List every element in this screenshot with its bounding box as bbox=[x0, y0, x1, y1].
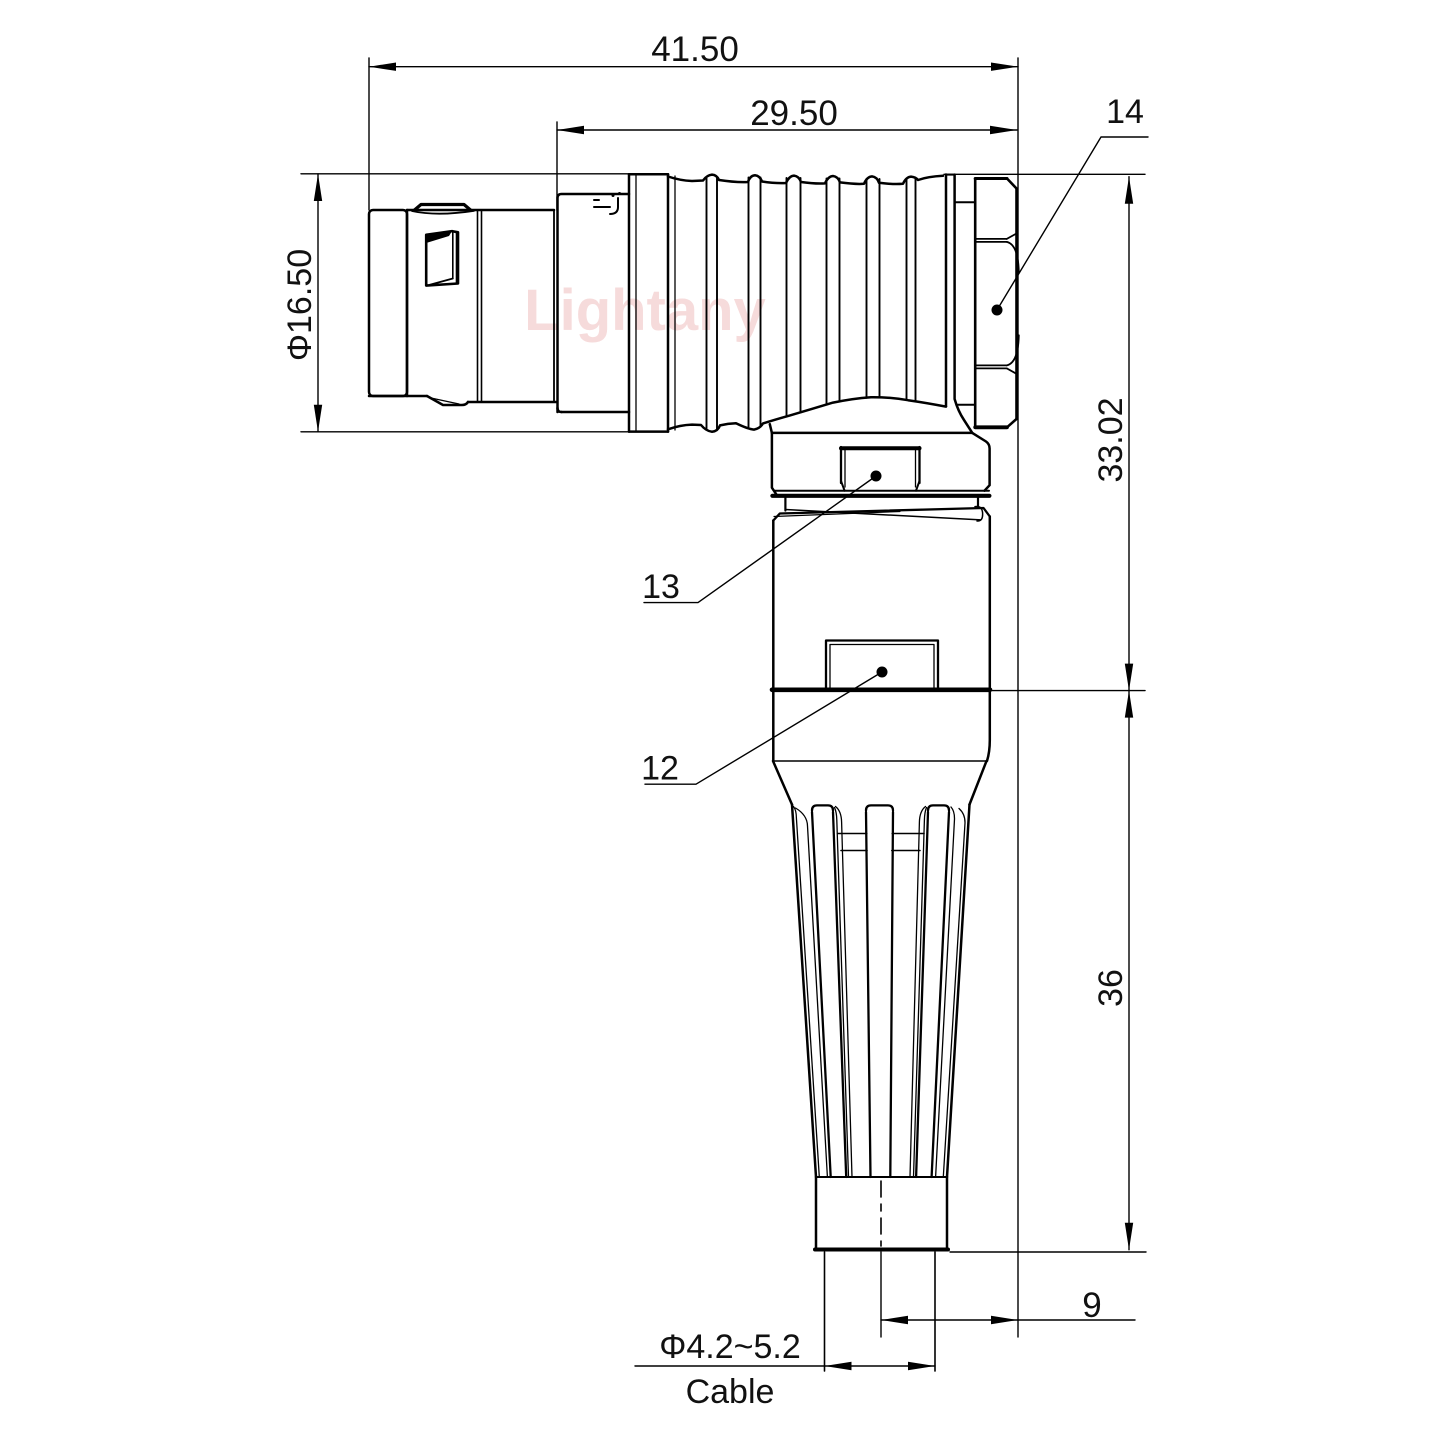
svg-text:36: 36 bbox=[1092, 969, 1130, 1007]
svg-text:Lightany: Lightany bbox=[524, 278, 766, 343]
svg-text:33.02: 33.02 bbox=[1092, 397, 1130, 482]
svg-text:12: 12 bbox=[641, 750, 679, 788]
svg-text:13: 13 bbox=[642, 568, 680, 606]
svg-text:14: 14 bbox=[1106, 93, 1144, 131]
svg-text:Φ4.2~5.2: Φ4.2~5.2 bbox=[659, 1328, 801, 1366]
svg-text:41.50: 41.50 bbox=[651, 30, 739, 69]
svg-text:Cable: Cable bbox=[686, 1373, 775, 1411]
svg-text:9: 9 bbox=[1082, 1286, 1101, 1325]
svg-text:29.50: 29.50 bbox=[750, 94, 838, 133]
svg-text:Φ16.50: Φ16.50 bbox=[281, 249, 319, 361]
